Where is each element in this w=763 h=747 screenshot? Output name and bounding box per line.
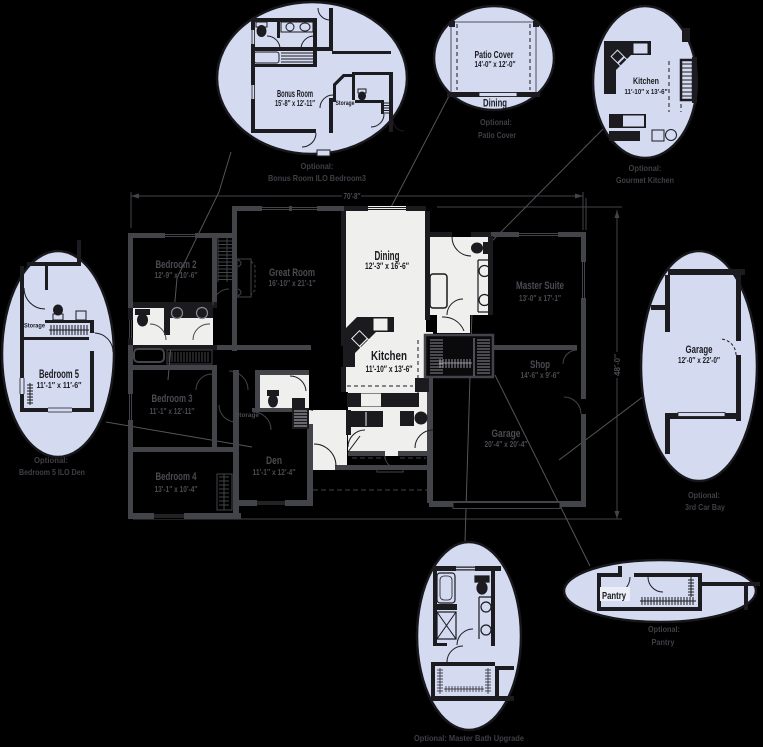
svg-text:Shop: Shop [530, 359, 550, 371]
svg-text:Optional:: Optional: [301, 161, 334, 171]
svg-text:11′-10″ x 13′-6″: 11′-10″ x 13′-6″ [366, 364, 414, 374]
svg-text:Bedroom 5: Bedroom 5 [39, 369, 79, 381]
svg-text:Optional:: Optional: [648, 624, 680, 634]
svg-text:Optional:: Optional: [34, 455, 68, 465]
svg-text:Gourmet Kitchen: Gourmet Kitchen [616, 175, 674, 185]
svg-text:Kitchen: Kitchen [633, 76, 659, 86]
svg-text:11′-1″ x 12′-4″: 11′-1″ x 12′-4″ [253, 468, 296, 477]
svg-text:Bedroom 3: Bedroom 3 [152, 393, 193, 405]
svg-text:Bonus Room ILO Bedroom3: Bonus Room ILO Bedroom3 [268, 173, 366, 183]
svg-text:15′-8″ x 12′-11″: 15′-8″ x 12′-11″ [275, 99, 315, 108]
svg-text:20′-4″ x 20′-4″: 20′-4″ x 20′-4″ [485, 440, 528, 449]
svg-text:Bedroom 5 ILO Den: Bedroom 5 ILO Den [19, 467, 85, 477]
svg-text:Pantry: Pantry [652, 637, 675, 647]
svg-text:Master Suite: Master Suite [516, 280, 564, 292]
svg-text:12′-3″ x 16′-6″: 12′-3″ x 16′-6″ [365, 261, 410, 271]
svg-text:Bedroom 4: Bedroom 4 [156, 471, 198, 483]
svg-text:Optional: Master Bath Upgrade: Optional: Master Bath Upgrade [414, 733, 524, 743]
svg-text:70′-8″: 70′-8″ [344, 192, 361, 201]
svg-text:Patio Cover: Patio Cover [478, 130, 517, 140]
svg-text:Great Room: Great Room [269, 267, 315, 279]
svg-text:Dining: Dining [483, 98, 507, 110]
svg-text:Storage: Storage [24, 323, 45, 330]
svg-text:11′-1″ x 12′-11″: 11′-1″ x 12′-11″ [150, 407, 195, 416]
svg-text:48′-0″: 48′-0″ [613, 354, 622, 376]
svg-text:13′-0″ x 17′-1″: 13′-0″ x 17′-1″ [519, 294, 561, 303]
svg-text:11′-10″ x 13′-6″: 11′-10″ x 13′-6″ [625, 87, 668, 96]
svg-text:Optional:: Optional: [480, 117, 512, 127]
svg-text:13′-1″ x 10′-4″: 13′-1″ x 10′-4″ [155, 485, 198, 494]
svg-text:11′-1″ x 11′-6″: 11′-1″ x 11′-6″ [37, 381, 82, 390]
svg-text:Storage: Storage [235, 412, 259, 419]
svg-text:3rd Car Bay: 3rd Car Bay [685, 502, 725, 512]
svg-text:Den: Den [266, 455, 282, 467]
svg-text:Pantry: Pantry [602, 591, 626, 602]
svg-text:Optional:: Optional: [688, 490, 720, 500]
svg-text:12′-0″ x 22′-0″: 12′-0″ x 22′-0″ [678, 356, 720, 365]
svg-text:14′-6″ x 9′-6″: 14′-6″ x 9′-6″ [521, 371, 560, 380]
svg-text:Optional:: Optional: [629, 163, 662, 173]
svg-text:Kitchen: Kitchen [371, 348, 407, 363]
svg-text:Garage: Garage [492, 428, 521, 440]
svg-text:Garage: Garage [686, 344, 713, 356]
svg-text:16′-10″ x 21′-1″: 16′-10″ x 21′-1″ [269, 279, 316, 288]
svg-text:Bedroom 2: Bedroom 2 [156, 259, 197, 271]
svg-text:12′-9″ x 10′-6″: 12′-9″ x 10′-6″ [155, 271, 198, 280]
svg-text:Storage: Storage [336, 100, 355, 107]
svg-text:14′-0″ x 12′-0″: 14′-0″ x 12′-0″ [475, 60, 516, 69]
